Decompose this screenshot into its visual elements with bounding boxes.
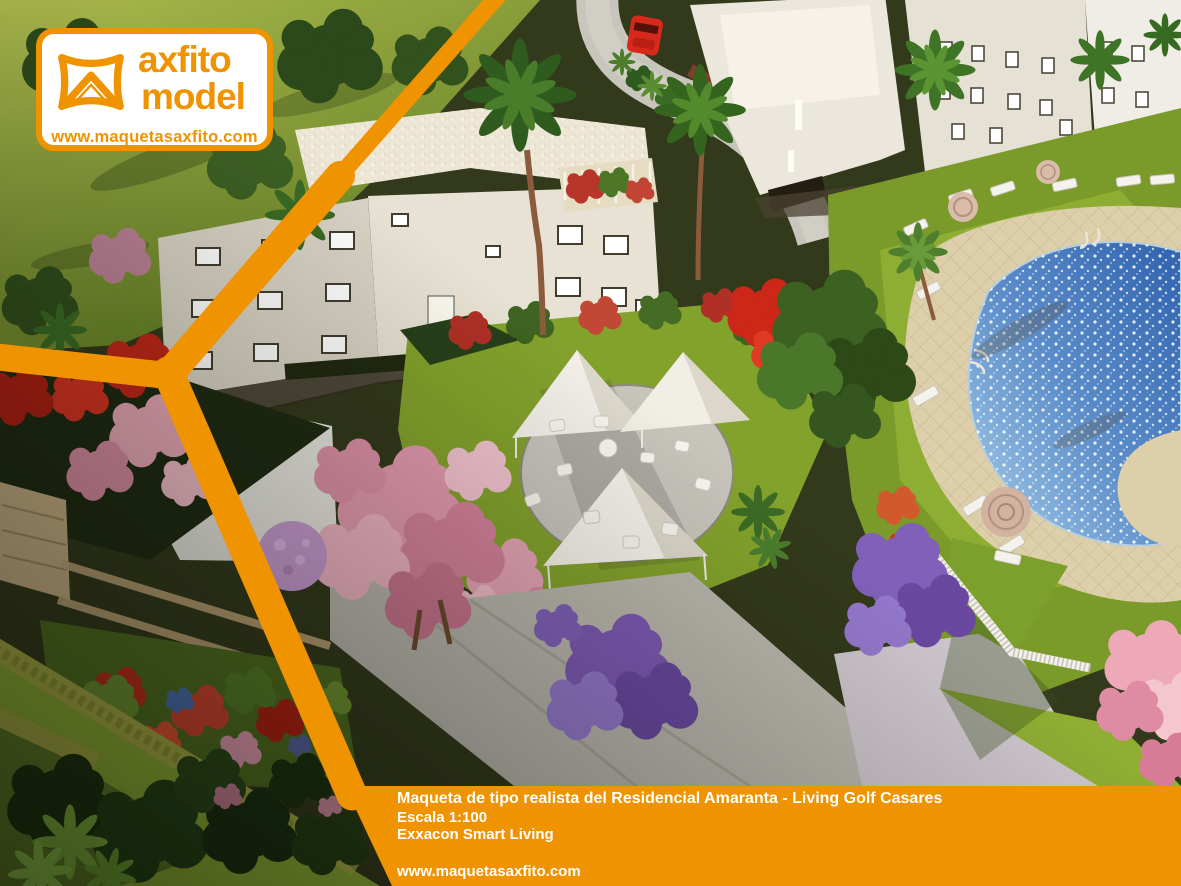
brand-word-top: axfito [138,41,231,78]
axfito-model-promo-image: Maqueta de tipo realista del Residencial… [0,0,1181,886]
axfito-logo-icon [52,42,130,122]
caption-website: www.maquetasaxfito.com [397,863,581,880]
brand-word-bottom: model [141,78,245,115]
brand-website: www.maquetasaxfito.com [42,128,267,147]
brand-badge: axfito model www.maquetasaxfito.com [36,28,273,151]
caption-scale: Escala 1:100 [397,809,487,826]
caption-client: Exxacon Smart Living [397,826,554,843]
caption-title: Maqueta de tipo realista del Residencial… [397,790,942,808]
